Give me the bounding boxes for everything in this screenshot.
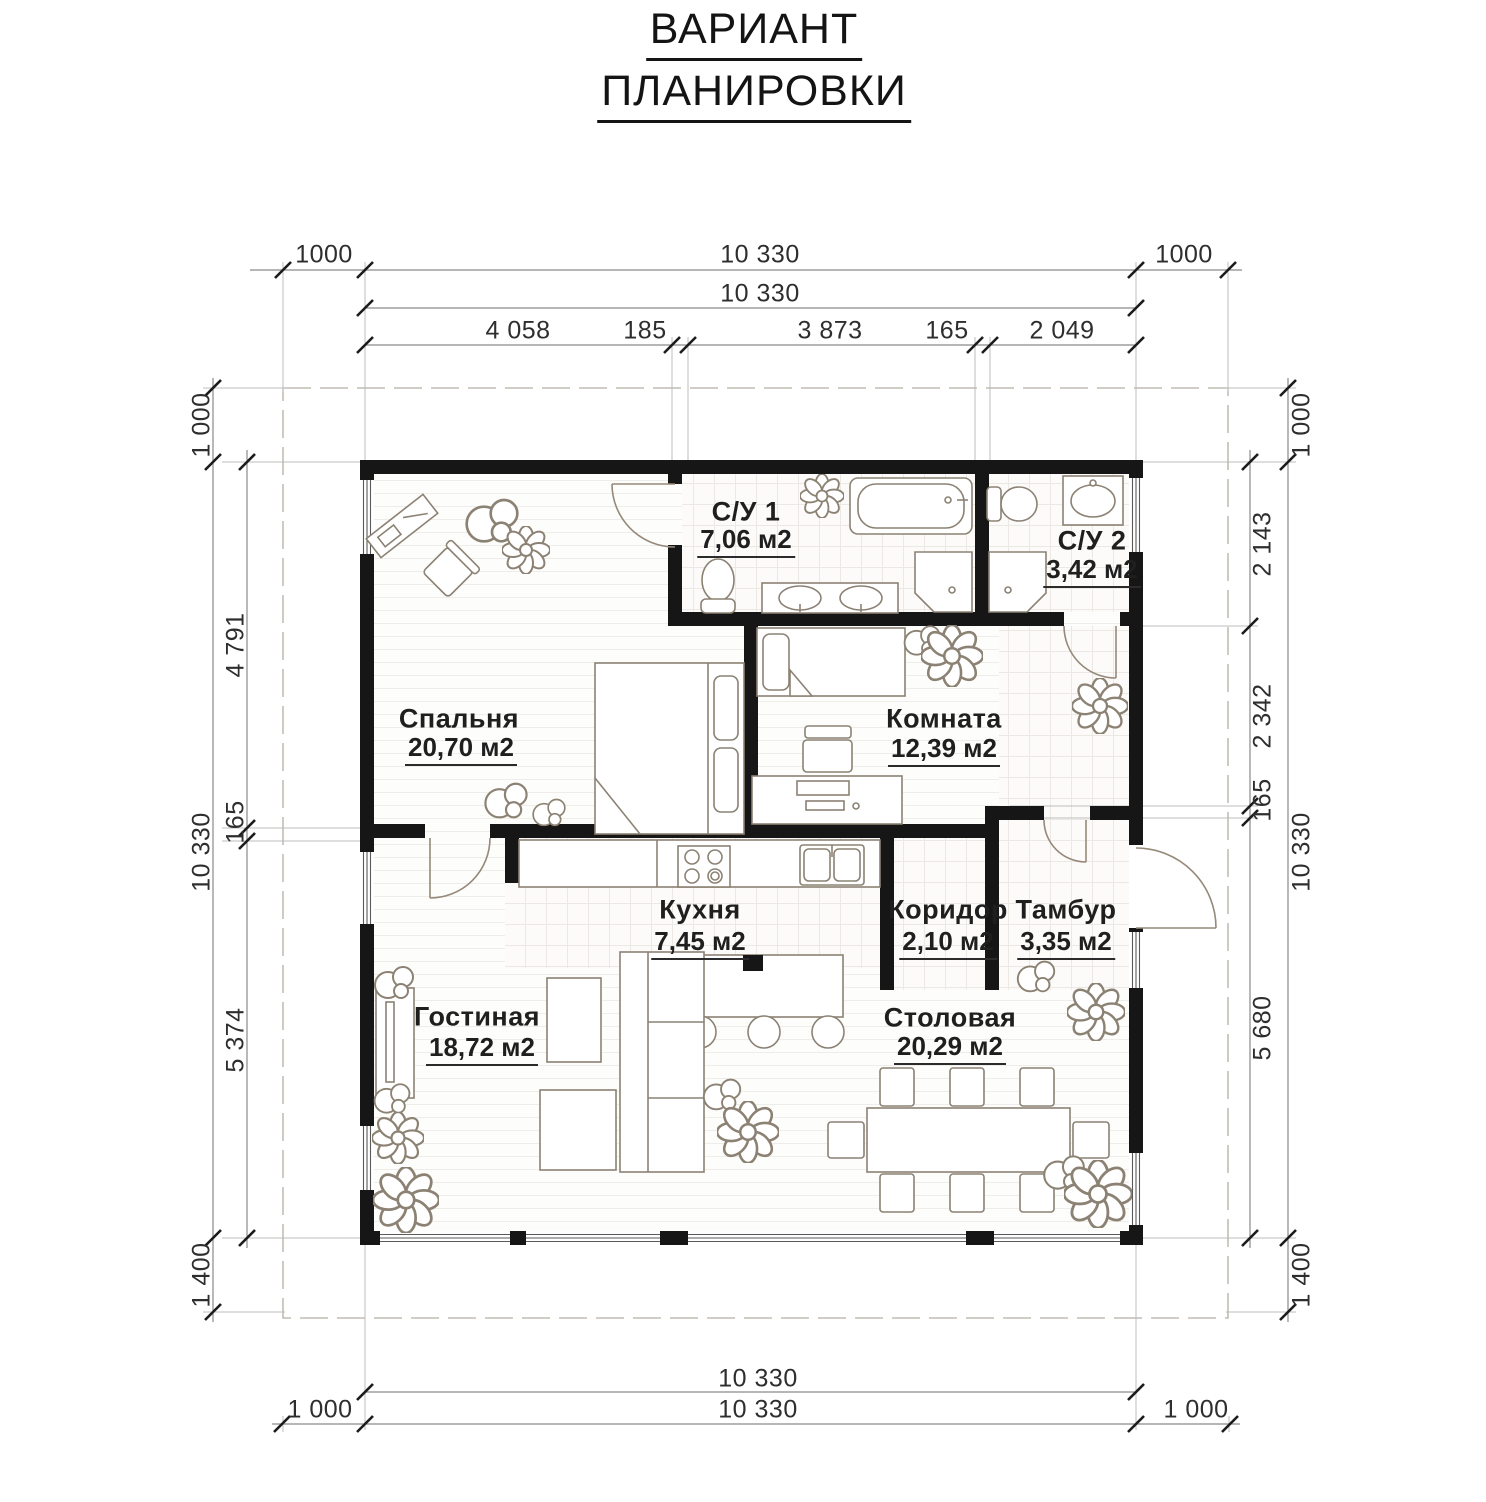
dim-bottom-overall-1: 10 330 — [718, 1365, 797, 1394]
room-label-corridor: Коридор — [888, 895, 1008, 926]
dim-top-offset-left: 1000 — [295, 241, 353, 270]
dining-table — [867, 1108, 1070, 1172]
dim-right-seg-4: 5 680 — [1249, 995, 1278, 1060]
dining-chair — [950, 1174, 984, 1212]
ottoman — [540, 1090, 616, 1170]
plant — [800, 474, 844, 518]
wall-top — [360, 460, 1143, 474]
door-entry — [1136, 848, 1216, 928]
tv-bench — [376, 988, 414, 1098]
plant — [1067, 983, 1125, 1041]
plant — [373, 1167, 439, 1233]
room-label-dining: Столовая — [884, 1003, 1017, 1034]
dim-top-seg-1: 4 058 — [485, 317, 550, 346]
toilet-1 — [701, 559, 735, 613]
dim-left-overall: 10 330 — [188, 812, 217, 891]
dim-top-seg-4: 165 — [925, 317, 968, 346]
double-bed — [595, 663, 744, 834]
armchair — [547, 978, 601, 1062]
dim-bottom-offset-right: 1 000 — [1163, 1396, 1228, 1425]
room-label-tambur: Тамбур — [1016, 895, 1117, 926]
room-area-komnata: 12,39 м2 — [888, 733, 1000, 767]
cooktop — [678, 846, 730, 887]
floor-plan-drawing — [0, 0, 1486, 1502]
dim-left-seg-1: 4 791 — [222, 612, 251, 677]
dim-bottom-overall-2: 10 330 — [718, 1396, 797, 1425]
room-area-kitchen: 7,45 м2 — [651, 926, 749, 960]
dim-top-seg-5: 2 049 — [1029, 317, 1094, 346]
plant — [1064, 1160, 1132, 1228]
dim-right-offset-bottom: 1 400 — [1288, 1242, 1317, 1307]
dim-bottom-offset-left: 1 000 — [287, 1396, 352, 1425]
dim-right-overall: 10 330 — [1288, 812, 1317, 891]
room-label-bathroom1: С/У 1 — [712, 497, 781, 528]
dining-chair — [880, 1174, 914, 1212]
room-area-tambur: 3,35 м2 — [1017, 926, 1115, 960]
dim-top-seg-2: 185 — [623, 317, 666, 346]
dim-left-offset-top: 1 000 — [188, 392, 217, 457]
dim-top-offset-right: 1000 — [1155, 241, 1213, 270]
toilet-2 — [987, 487, 1037, 521]
room-area-dining: 20,29 м2 — [894, 1031, 1006, 1065]
sofa — [620, 952, 704, 1172]
plant — [717, 1101, 779, 1163]
dining-chair — [880, 1068, 914, 1106]
dim-top-seg-3: 3 873 — [797, 317, 862, 346]
plant — [1072, 678, 1128, 734]
dim-right-seg-1: 2 143 — [1249, 511, 1278, 576]
room-label-bathroom2: С/У 2 — [1058, 526, 1127, 557]
dim-top-overall-1: 10 330 — [720, 241, 799, 270]
dim-left-seg-2: 165 — [222, 800, 251, 843]
dim-top-overall-2: 10 330 — [720, 280, 799, 309]
title-line2: ПЛАНИРОВКИ — [597, 67, 911, 123]
dim-left-offset-bottom: 1 400 — [188, 1242, 217, 1307]
bar-stool — [748, 1016, 780, 1048]
single-bed — [757, 628, 905, 696]
dining-chair — [1073, 1122, 1109, 1158]
plant — [921, 625, 983, 687]
bar-stool — [812, 1016, 844, 1048]
dining-chair — [950, 1068, 984, 1106]
kitchen-sink — [800, 845, 864, 885]
room-label-kitchen: Кухня — [659, 895, 740, 926]
room-label-komnata: Комната — [886, 704, 1002, 735]
room-area-bathroom2: 3,42 м2 — [1043, 554, 1141, 588]
dim-left-seg-3: 5 374 — [222, 1007, 251, 1072]
room-area-bedroom: 20,70 м2 — [405, 732, 517, 766]
komnata-desk — [752, 776, 902, 824]
dim-right-offset-top: 1 000 — [1288, 392, 1317, 457]
plant — [372, 1112, 424, 1164]
dining-chair — [828, 1122, 864, 1158]
drawing-title: ВАРИАНТ ПЛАНИРОВКИ — [597, 2, 911, 126]
title-line1: ВАРИАНТ — [646, 5, 863, 61]
room-label-living: Гостиная — [414, 1002, 540, 1033]
dim-right-seg-2: 2 342 — [1249, 683, 1278, 748]
dining-chair — [1020, 1068, 1054, 1106]
room-label-bedroom: Спальня — [399, 704, 519, 735]
plant — [502, 526, 550, 574]
bathtub — [850, 478, 972, 534]
kitchen-counter — [519, 840, 880, 887]
room-area-living: 18,72 м2 — [426, 1032, 538, 1066]
room-area-corridor: 2,10 м2 — [899, 926, 997, 960]
washbasin-2 — [1063, 476, 1123, 525]
vanity-double-sink — [762, 583, 898, 613]
entry-door-gap — [1129, 845, 1143, 928]
komnata-chair — [803, 726, 852, 772]
room-area-bathroom1: 7,06 м2 — [697, 524, 795, 558]
dim-right-seg-3: 165 — [1249, 778, 1278, 821]
